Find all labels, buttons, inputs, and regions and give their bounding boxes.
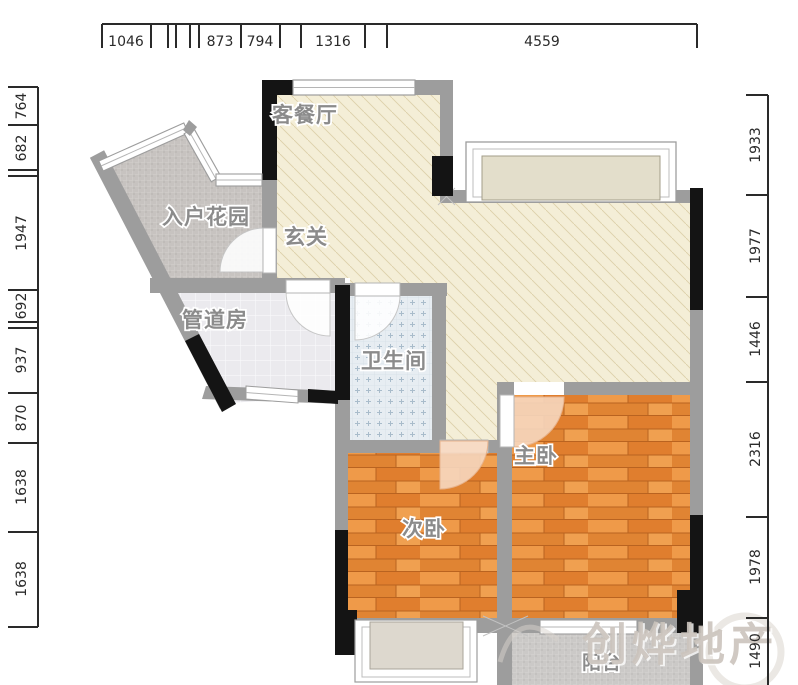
- room-label-second-bedroom: 次卧: [402, 517, 446, 541]
- room-label-garden: 入户花园: [162, 205, 250, 229]
- dim-left-4: 937: [14, 347, 30, 374]
- dim-right-5: 1490: [748, 633, 764, 669]
- room-label-living: 客餐厅: [272, 103, 338, 127]
- dimension-left-labels: 764 682 1947 692 937 870 1638 1638: [14, 93, 30, 597]
- dim-left-6: 1638: [14, 469, 30, 505]
- dim-top-4: 4559: [524, 34, 560, 50]
- room-label-master-bedroom: 主卧: [514, 444, 558, 468]
- dim-top-1: 873: [207, 34, 234, 50]
- dim-right-3: 2316: [748, 431, 764, 467]
- dim-right-1: 1977: [748, 228, 764, 264]
- dim-left-5: 870: [14, 405, 30, 432]
- dim-left-1: 682: [14, 135, 30, 162]
- dim-top-2: 794: [247, 34, 274, 50]
- room-label-pipe: 管道房: [182, 308, 248, 332]
- dim-right-4: 1978: [748, 549, 764, 585]
- floorplan-screenshot: 客餐厅 入户花园 玄关 管道房 卫生间 次卧 主卧 阳台 创烨地产 创烨地产 1…: [0, 0, 798, 685]
- dim-top-0: 1046: [108, 34, 144, 50]
- dim-right-0: 1933: [748, 127, 764, 163]
- floorplan-svg: 客餐厅 入户花园 玄关 管道房 卫生间 次卧 主卧 阳台 创烨地产 创烨地产 1…: [0, 0, 798, 685]
- dim-left-0: 764: [14, 93, 30, 120]
- dimension-top: [102, 24, 697, 48]
- room-label-bath: 卫生间: [361, 349, 427, 373]
- dim-left-2: 1947: [14, 215, 30, 251]
- room-label-foyer: 玄关: [284, 225, 328, 249]
- living-bay-window: [466, 142, 676, 202]
- living-top-window: [293, 80, 415, 95]
- dim-top-3: 1316: [315, 34, 351, 50]
- dimension-right: [746, 95, 768, 685]
- garden-window-horizontal: [216, 174, 262, 186]
- bedroom2-bay-window: [355, 620, 477, 682]
- dim-right-2: 1446: [748, 321, 764, 357]
- dim-left-7: 1638: [14, 561, 30, 597]
- dim-left-3: 692: [14, 293, 30, 320]
- dimension-right-labels: 1933 1977 1446 2316 1978 1490: [748, 127, 764, 669]
